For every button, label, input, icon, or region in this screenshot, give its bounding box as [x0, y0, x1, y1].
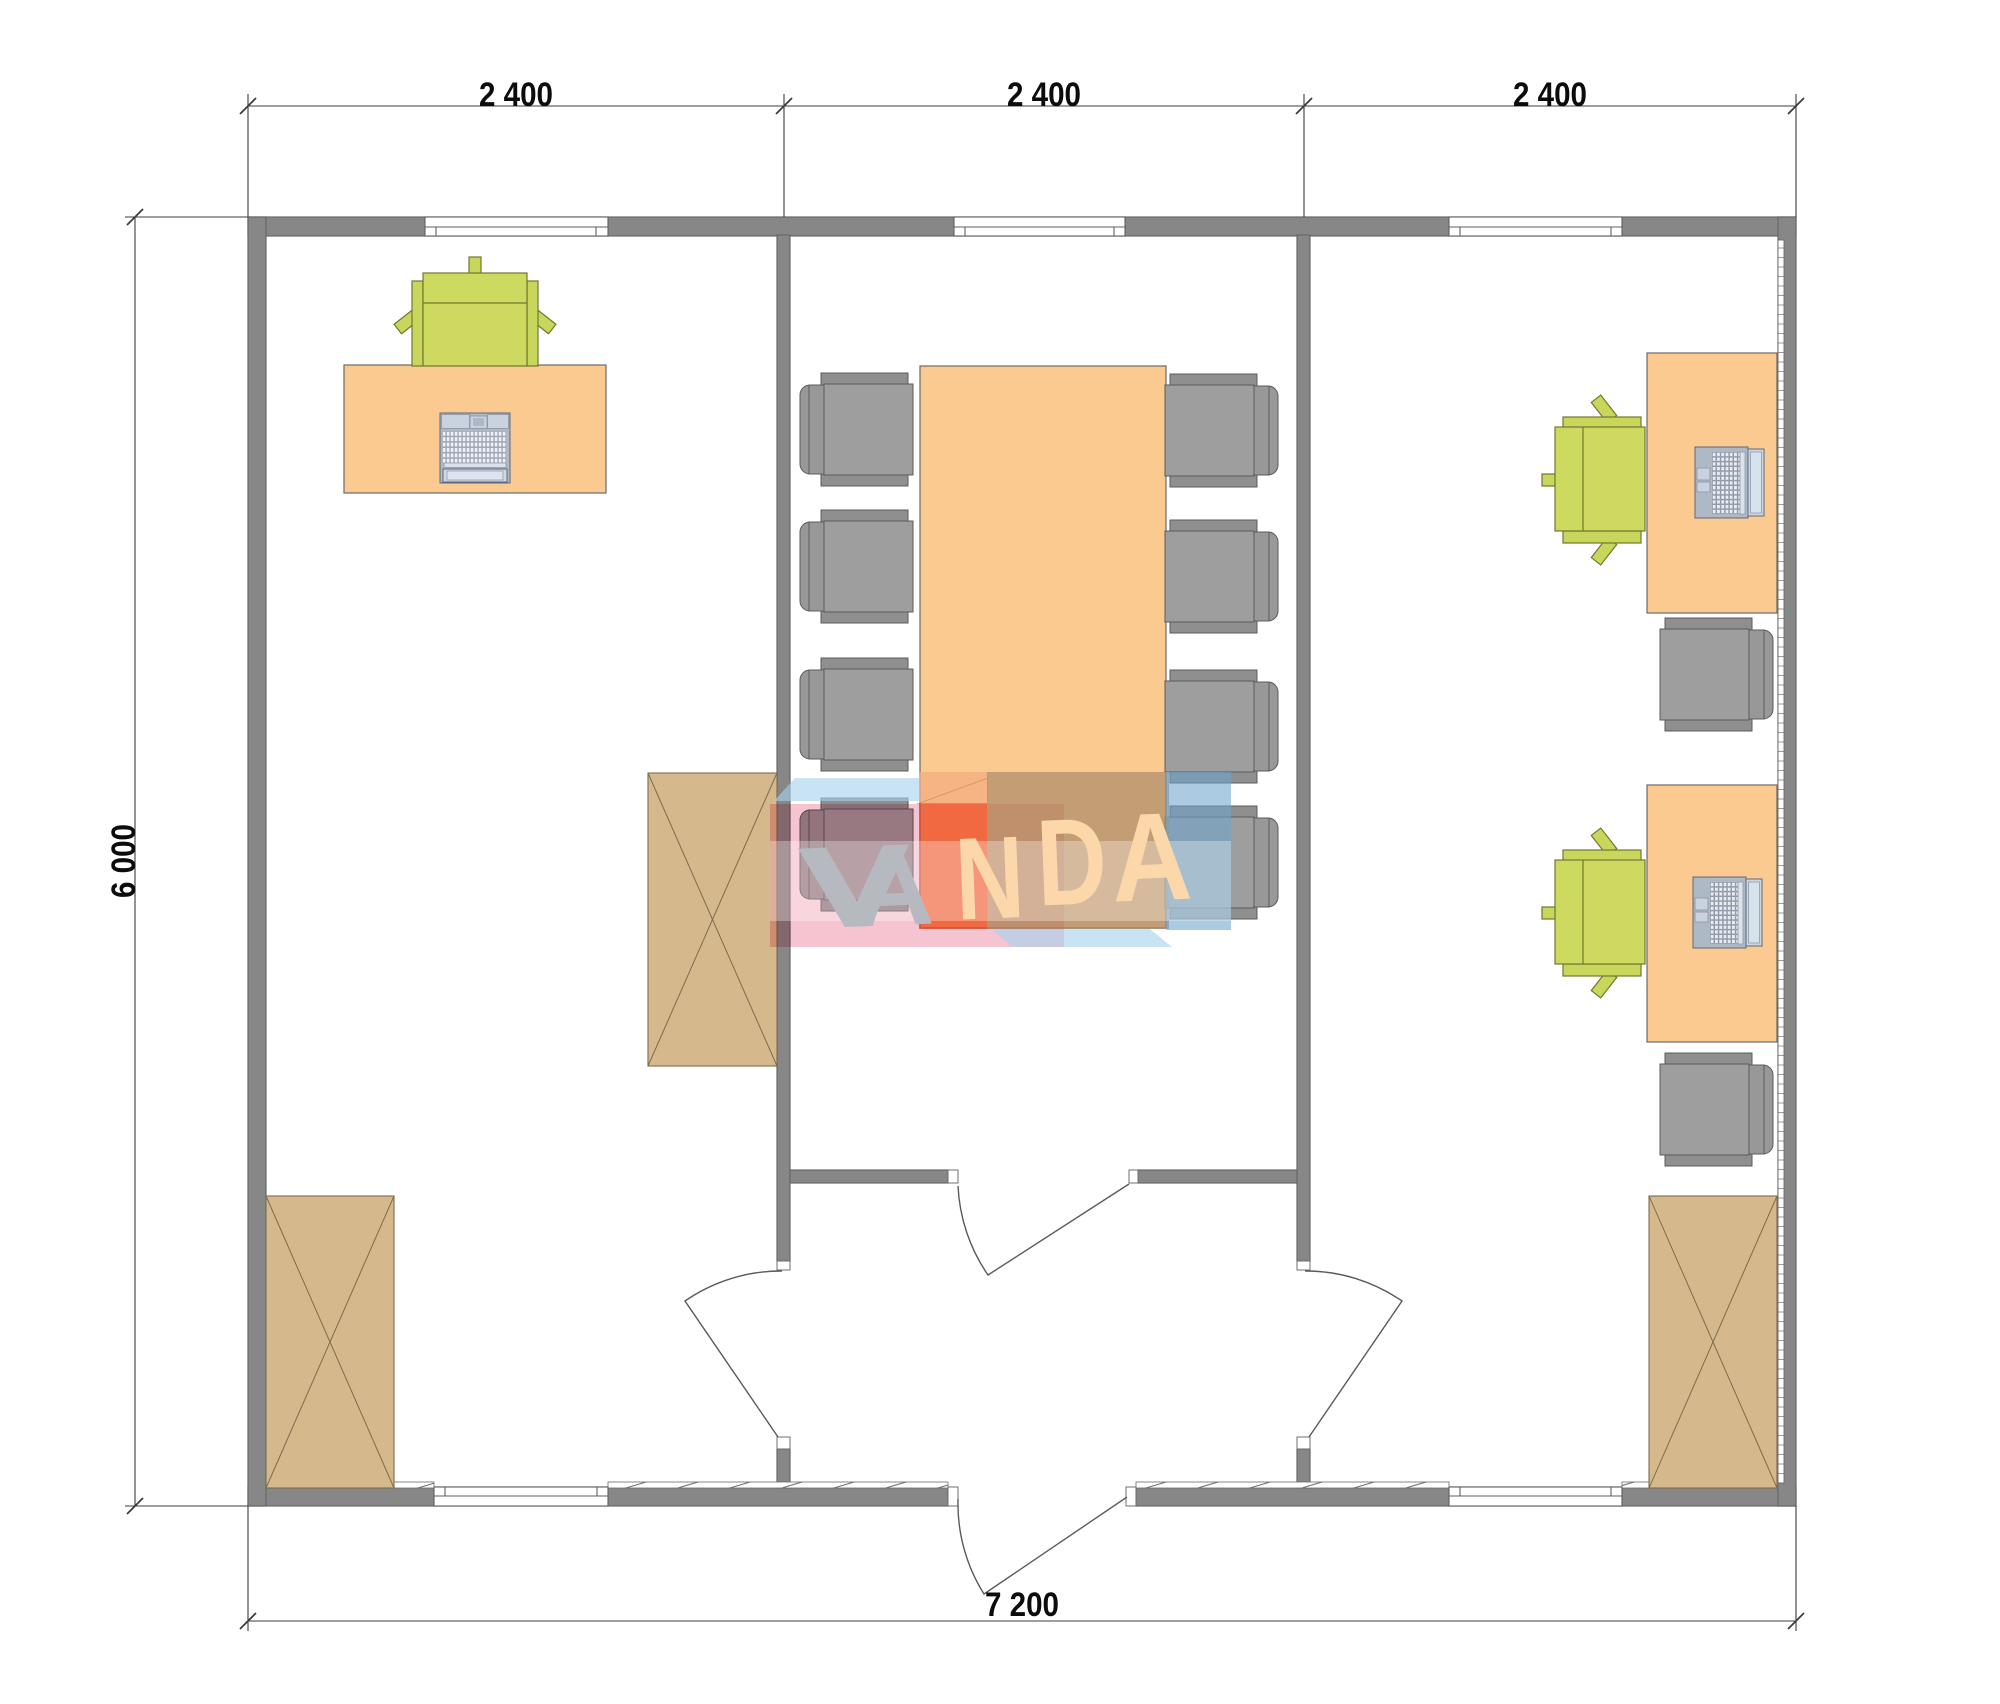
svg-text:A: A: [850, 823, 936, 951]
svg-text:A: A: [1109, 787, 1194, 929]
svg-text:2 400: 2 400: [479, 76, 553, 114]
svg-text:7 200: 7 200: [985, 1586, 1059, 1624]
svg-text:6 000: 6 000: [105, 824, 143, 898]
svg-text:2 400: 2 400: [1007, 76, 1081, 114]
svg-text:D: D: [1034, 793, 1109, 933]
svg-text:N: N: [953, 811, 1027, 945]
svg-text:2 400: 2 400: [1513, 76, 1587, 114]
